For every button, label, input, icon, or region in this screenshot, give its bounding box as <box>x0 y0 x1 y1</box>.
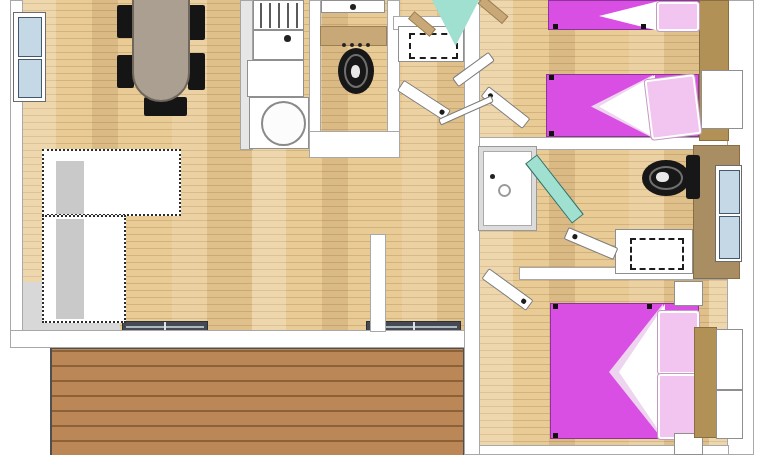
kitchen-hob <box>253 0 304 30</box>
window <box>13 12 46 102</box>
shower-frame <box>478 146 537 231</box>
cistern-button <box>342 43 346 47</box>
wardrobe <box>694 327 717 438</box>
overhead-cabinet <box>701 70 743 129</box>
floor-plan <box>0 0 759 455</box>
cistern-button <box>366 43 370 47</box>
wardrobe-panel <box>716 390 743 439</box>
sofa-chaise-section <box>42 215 126 323</box>
window <box>715 165 742 262</box>
single-bed <box>546 74 699 137</box>
dining-chair <box>188 5 205 40</box>
shower-tray <box>483 151 532 226</box>
cabinet-top <box>409 33 458 59</box>
vanity-top <box>630 238 684 270</box>
single-bed <box>548 0 699 30</box>
shower-head-icon <box>490 174 495 179</box>
wardrobe-panel <box>716 329 743 390</box>
dining-chair <box>188 53 205 90</box>
toilet-icon <box>642 160 690 196</box>
sofa-horizontal-section <box>42 149 181 216</box>
double-bed <box>550 303 699 439</box>
cistern-button <box>350 43 354 47</box>
wc-washbasin <box>321 0 385 13</box>
hob-grill <box>260 3 298 28</box>
corner-appliance <box>261 101 306 146</box>
vanity-unit <box>615 229 693 274</box>
faucet-icon <box>350 4 356 10</box>
shower-drain <box>498 184 511 197</box>
kitchen-corner-unit <box>249 97 309 149</box>
partition-wall-stub <box>370 234 386 332</box>
faucet-icon <box>284 35 291 42</box>
deck-terrace <box>50 347 465 455</box>
kitchen-counter <box>247 60 304 97</box>
dining-table <box>132 0 190 102</box>
kitchen-sink <box>253 30 304 60</box>
nightstand <box>674 281 703 306</box>
wc-wall-bottom <box>309 131 400 158</box>
cistern-button <box>358 43 362 47</box>
exterior-wall-bottom-left <box>10 330 468 348</box>
toilet-icon <box>338 48 374 94</box>
